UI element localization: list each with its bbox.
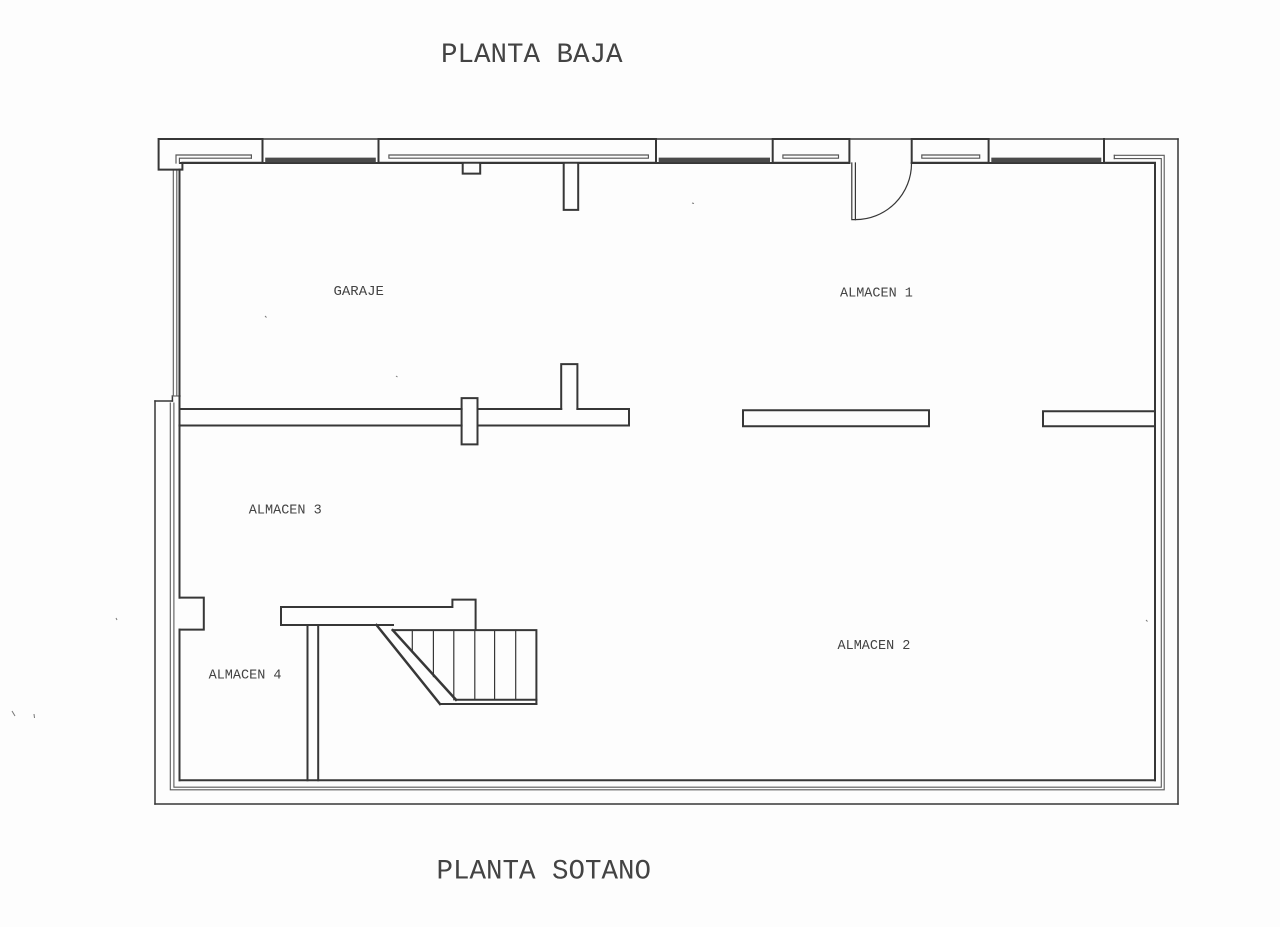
- svg-text:PLANTA SOTANO: PLANTA SOTANO: [437, 857, 652, 888]
- svg-text:ALMACEN 3: ALMACEN 3: [249, 504, 322, 519]
- svg-text:ALMACEN 4: ALMACEN 4: [209, 669, 282, 684]
- svg-text:ALMACEN 2: ALMACEN 2: [838, 639, 911, 654]
- svg-text:GARAJE: GARAJE: [334, 284, 384, 300]
- svg-text:ALMACEN 1: ALMACEN 1: [840, 287, 913, 302]
- svg-text:PLANTA BAJA: PLANTA BAJA: [441, 40, 623, 71]
